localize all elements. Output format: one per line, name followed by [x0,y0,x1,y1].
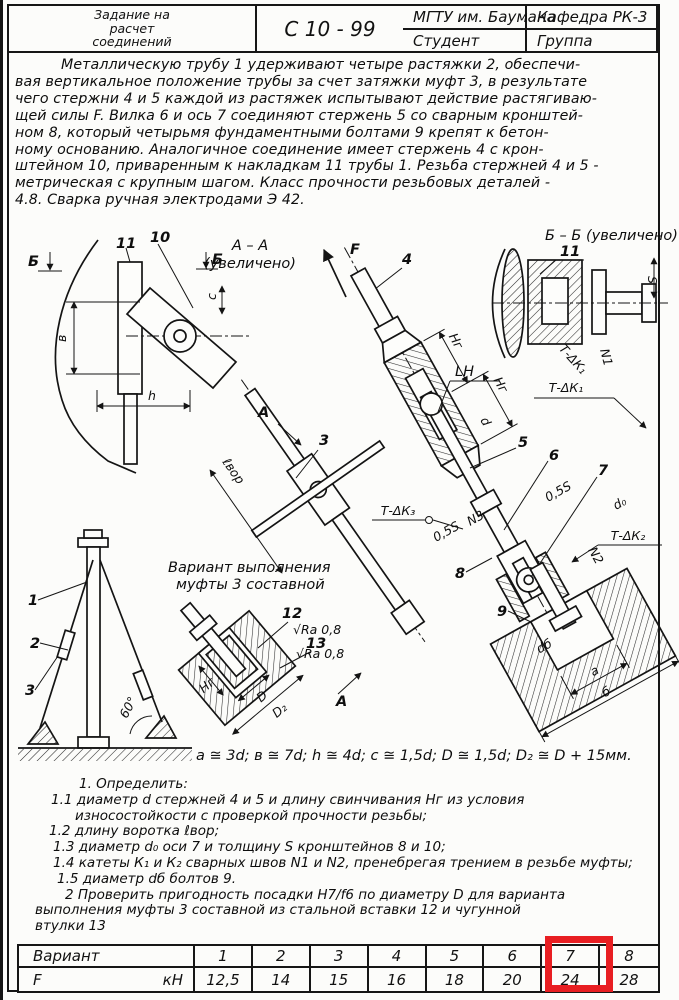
thread-lh-label: LH [455,364,474,380]
variant-cell: 6 [484,946,542,968]
view-bb-title: Б – Б (увеличено) [545,228,678,244]
assignment-title-cell: Задание на расчет соединений [9,6,257,53]
part-7-label: 7 [598,463,609,479]
description-line: вая вертикальное положение трубы за счет… [15,74,663,91]
coupling-variant-detail: Hг D D₂ [150,577,315,749]
dim-c-label: c [204,293,219,300]
part-1-label: 1 [28,593,38,609]
part-8-label: 8 [455,566,465,582]
variant-cell: 3 [311,946,369,968]
part-5-label: 5 [518,435,528,451]
variant-cell: 1 [195,946,253,968]
dim-v-label: в [54,335,69,342]
part-13-label: 13 [306,636,326,652]
dim-d-label: d [477,414,494,428]
department-cell: Кафедра РК-3 [527,6,658,30]
technical-drawing: 11 10 Б Б в h c А – А (увеличено) F [0,215,679,763]
force-unit: кН [163,971,183,989]
variant-note-line2: муфты 3 составной [176,577,325,593]
dim-lvor-label: ℓвор [219,454,248,487]
part-11-label: 11 [116,236,136,252]
assignment-title-line3: соединений [92,35,171,49]
variant-row-header: Вариант [19,946,195,968]
task-line: износостойкости с проверкой прочности ре… [75,809,670,825]
dim-s-label: S [645,276,660,284]
university-cell: МГТУ им. Баумана [403,6,527,30]
description-line: чего стержни 4 и 5 каждой из растяжек ис… [15,91,663,108]
weld-callout-k2: Т-ΔК₂ [611,528,646,543]
force-cell: 18 [427,968,485,991]
mast-sketch: 1 2 3 60° [18,530,192,761]
task-line: 1.2 длину воротка ℓвор; [49,824,670,840]
view-aa-header: А – А (увеличено) F 4 [204,238,412,297]
group-cell: Группа [527,30,658,53]
task-list: 1. Определить: 1.1 диаметр d стержней 4 … [15,777,670,935]
task-line: 2 Проверить пригодность посадки Н7/f6 по… [65,888,670,904]
student-cell: Студент [403,30,527,53]
description-line: 4.8. Сварка ручная электродами Э 42. [15,192,663,209]
weld-callout-k1: Т-ΔК₁ [549,380,584,395]
dim-d0-label: d₀ [610,493,629,512]
proportions-formula-line: a ≅ 3d; в ≅ 7d; h ≅ 4d; c ≅ 1,5d; D ≅ 1,… [196,748,632,764]
force-cell: 16 [369,968,427,991]
section-a-top-label: А [257,405,269,421]
force-cell: 12,5 [195,968,253,991]
description-line: ному основанию. Аналогичное соединение и… [15,142,663,159]
description-line: щей силы F. Вилка 6 и ось 7 соединяют ст… [15,108,663,125]
variant-cell: 4 [369,946,427,968]
dim-half-s-label: 0,5S [542,478,574,505]
variant-cell: 2 [253,946,311,968]
weld-callout-k3: Т-ΔК₃ [381,503,416,518]
angle-60-label: 60° [116,694,140,721]
section-a-bottom-label: А [335,694,347,710]
dim-half-s-label: 0,5S [430,518,462,545]
task-line: 1.3 диаметр d₀ оси 7 и толщину S кронште… [53,840,670,856]
part-2-label: 2 [30,636,40,652]
part-6-label: 6 [549,448,559,464]
doc-code-cell: С 10 - 99 [257,6,403,53]
part-3-label: 3 [319,433,329,449]
variant-cell: 5 [427,946,485,968]
force-cell: 15 [311,968,369,991]
section-b-left-label: Б [28,254,39,270]
document-page: МГТУ им. Баумана Кафедра РК-3 Задание на… [0,0,679,1000]
task-line: втулки 13 [35,919,670,935]
force-cell: 20 [484,968,542,991]
assignment-title-line2: расчет [110,22,155,36]
force-cell: 14 [253,968,311,991]
part-12-label: 12 [282,606,302,622]
part-9-label: 9 [497,604,507,620]
description-paragraph: Металлическую трубу 1 удерживают четыре … [15,57,663,209]
description-line: штейном 10, приваренным к накладкам 11 т… [15,158,663,175]
force-row-header: F кН [19,968,195,991]
description-line: Металлическую трубу 1 удерживают четыре … [15,57,663,74]
part-10-label: 10 [150,230,170,246]
part-3-label: 3 [25,683,35,699]
part-11-label: 11 [560,244,580,260]
part-4-label: 4 [401,252,412,268]
variant-note-line1: Вариант выполнения [168,560,331,576]
header-table: МГТУ им. Баумана Кафедра РК-3 Задание на… [9,6,658,53]
roughness-mark: √Ra 0,8 [293,622,341,637]
dim-h-label: h [148,388,156,403]
view-aa-title: А – А [231,238,268,254]
description-line: ном 8, который четырьмя фундаментными бо… [15,125,663,142]
tommy-bar [252,441,384,537]
weld-n2-label: N2 [585,544,607,566]
task-line: 1.4 катеты К₁ и К₂ сварных швов N1 и N2,… [53,856,670,872]
force-f-label: F [350,242,360,258]
task-line: 1.5 диаметр dб болтов 9. [57,872,670,888]
view-bb-detail: Б – Б (увеличено) 11 S N1 Т-ΔК₁ Т-ΔК₁ [492,228,678,428]
variant-highlight-box [545,936,613,992]
task-line: 1. Определить: [79,777,670,793]
description-line: метрическая с крупным шагом. Класс прочн… [15,175,663,192]
dim-D2-label: D₂ [269,700,290,721]
task-line: выполнения муфты 3 составной из стальной… [35,903,670,919]
weld-n1-label: N1 [597,347,616,368]
task-line: 1.1 диаметр d стержней 4 и 5 и длину сви… [51,793,670,809]
assignment-title-line1: Задание на [94,8,170,22]
view-aa-subtitle: (увеличено) [204,256,296,272]
weld-callout-k1: Т-ΔК₁ [556,341,590,377]
force-symbol: F [33,971,42,989]
